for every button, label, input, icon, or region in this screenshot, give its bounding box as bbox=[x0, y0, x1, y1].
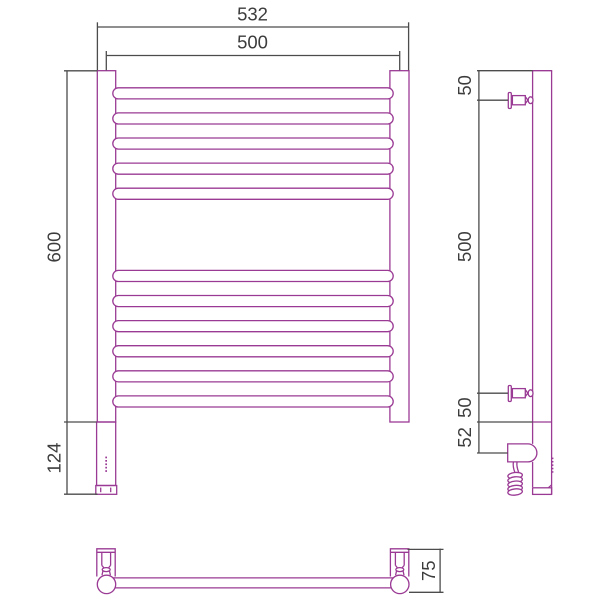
svg-text:500: 500 bbox=[237, 32, 268, 53]
svg-text:500: 500 bbox=[454, 231, 475, 262]
svg-text:75: 75 bbox=[418, 561, 439, 582]
svg-text:52: 52 bbox=[454, 427, 475, 448]
svg-text:50: 50 bbox=[454, 75, 475, 96]
svg-text:124: 124 bbox=[43, 443, 64, 474]
svg-text:600: 600 bbox=[43, 232, 64, 263]
svg-text:532: 532 bbox=[237, 3, 268, 24]
svg-text:50: 50 bbox=[454, 397, 475, 418]
